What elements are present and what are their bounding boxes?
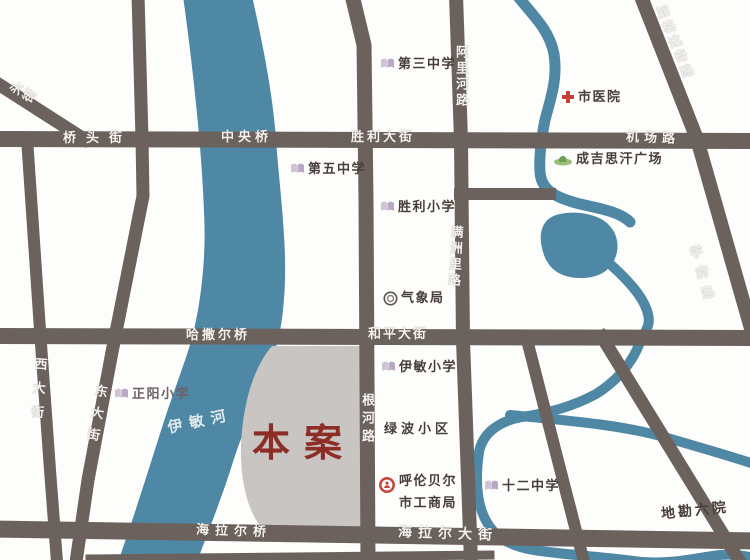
poi-shengli-primary-school: 胜利小学	[380, 200, 456, 218]
school-icon	[114, 387, 129, 405]
road-xi-avenue	[27, 138, 57, 560]
poi-yimin-primary-school: 伊敏小学	[381, 360, 457, 378]
poi-label: 十二中学	[502, 479, 560, 495]
school-icon	[380, 200, 395, 218]
school-icon	[484, 479, 499, 497]
road-diagonal-south-center	[527, 340, 584, 560]
poi-label: 胜利小学	[398, 200, 456, 216]
poi-lvbo-block: 绿波小区	[384, 422, 452, 438]
poi-label: 气象局	[401, 291, 445, 307]
school-icon	[380, 57, 395, 75]
poi-label: 成吉思汗广场	[576, 152, 663, 168]
poi-label: 绿波小区	[384, 422, 452, 438]
poi-no5-middle-school: 第五中学	[290, 162, 366, 180]
road-label-hasaer-bridge: 哈撒尔桥	[186, 328, 250, 343]
map-canvas: 伊敏河 本案 桥头街 中央桥 胜利大街 机场路 哈撒尔桥 和平大街 海拉尔桥 海…	[0, 0, 750, 560]
hospital-cross-icon	[561, 90, 575, 108]
road-label-alihe-road: 阿里河路	[453, 45, 468, 109]
poi-no3-middle-school: 第三中学	[380, 57, 456, 75]
gongshang-badge-icon	[378, 476, 396, 498]
road-label-qiaotou-street: 桥头街	[63, 131, 132, 146]
site-marker-label: 本案	[252, 412, 372, 467]
road-label-heping-avenue: 和平大街	[368, 327, 428, 342]
poi-no12-middle-school: 十二中学	[484, 479, 560, 497]
pond	[541, 213, 618, 278]
road-dong-avenue	[76, 0, 143, 560]
weather-bureau-icon	[383, 291, 398, 310]
road-label-shengli-avenue: 胜利大街	[351, 130, 415, 145]
school-icon	[290, 162, 305, 180]
poi-label: 伊敏小学	[399, 360, 457, 376]
poi-label-line1: 呼伦贝尔	[399, 474, 457, 490]
poi-zhengyang-primary-school: 正阳小学	[114, 387, 190, 405]
road-bottom-sliver	[90, 555, 490, 559]
road-label-jichang-road: 机场路	[626, 130, 681, 147]
poi-weather-bureau: 气象局	[383, 291, 445, 310]
poi-label: 第三中学	[398, 57, 456, 73]
road-network	[0, 0, 750, 560]
poi-label: 正阳小学	[132, 387, 190, 403]
poi-gongshang-bureau: 呼伦贝尔 市工商局	[378, 474, 457, 512]
square-green-icon	[553, 152, 573, 170]
map-base-art	[0, 0, 750, 560]
road-label-zhongyang-bridge: 中央桥	[221, 130, 272, 145]
poi-label: 第五中学	[308, 162, 366, 178]
school-icon	[381, 360, 396, 378]
poi-city-hospital: 市医院	[561, 90, 622, 108]
poi-genghis-khan-square: 成吉思汗广场	[553, 152, 663, 170]
road-label-genhe-road: 根河路	[359, 393, 374, 447]
road-label-hailaer-bridge: 海拉尔桥	[196, 523, 272, 541]
poi-label: 市医院	[578, 90, 622, 106]
poi-label-line2: 市工商局	[399, 496, 457, 512]
